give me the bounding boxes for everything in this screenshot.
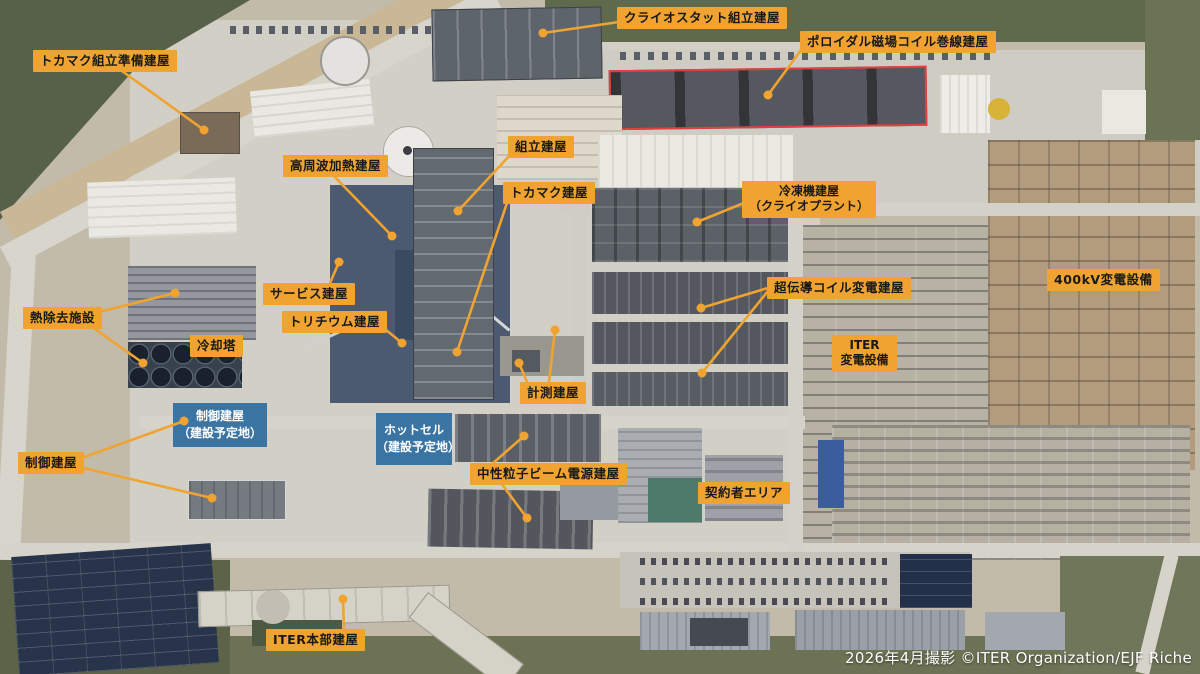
round-tank	[320, 36, 370, 86]
large-white-tent-left	[87, 177, 237, 238]
label-rf-heating: 高周波加熱建屋	[283, 155, 388, 177]
label-cooling-tower: 冷却塔	[190, 335, 243, 357]
blue-long-building	[818, 440, 844, 508]
overlay-hot-cell-line2: （建設予定地）	[376, 439, 452, 456]
round-dome-center	[403, 146, 412, 155]
contractor-teal-building	[648, 478, 702, 522]
magnet-power-block-3	[592, 372, 788, 406]
label-cryoplant-line2: （クライオプラント）	[749, 199, 869, 214]
switchyard-lower-right	[832, 425, 1190, 560]
white-tent-right-1	[940, 75, 990, 133]
photo-caption: 2026年4月撮影 ©ITER Organization/EJF Riche	[845, 647, 1192, 668]
label-contractor-area: 契約者エリア	[698, 482, 790, 504]
label-tokamak-building: トカマク建屋	[503, 182, 595, 204]
overlay-control-line2: （建設予定地）	[173, 425, 267, 442]
label-service-building: サービス建屋	[263, 283, 355, 305]
overlay-control-building-planned: 制御建屋 （建設予定地）	[173, 403, 267, 447]
hq-round-feature	[256, 590, 290, 624]
parked-cars-row-3	[640, 598, 890, 605]
solar-panels-bottom-left	[11, 543, 219, 674]
warehouse-bottom-2	[795, 610, 965, 650]
overlay-control-line1: 制御建屋	[173, 408, 267, 425]
label-iter-substation-line1: ITER	[839, 338, 890, 353]
white-long-tent-mid	[598, 135, 793, 187]
parked-cars-row-2	[640, 578, 890, 585]
yellow-coil	[988, 98, 1010, 120]
label-cryoplant: 冷凍機建屋 （クライオプラント）	[742, 181, 876, 218]
label-iter-substation: ITER 変電設備	[832, 335, 897, 372]
magnet-power-block-1	[592, 272, 788, 314]
label-iter-substation-line2: 変電設備	[839, 353, 890, 368]
label-heat-rejection: 熱除去施設	[23, 307, 102, 329]
cryostat-assembly-building	[431, 7, 602, 82]
aerial-photo-stage: 制御建屋 （建設予定地） ホットセル （建設予定地）	[0, 0, 1200, 674]
forest-right-edge	[1145, 0, 1200, 140]
warehouse-bottom-3	[985, 612, 1065, 650]
label-cryostat-assembly: クライオスタット組立建屋	[617, 7, 787, 29]
pf-coil-winding-building	[609, 66, 928, 130]
label-control-building: 制御建屋	[18, 452, 84, 474]
label-substation-400kv: 400kV変電設備	[1047, 269, 1160, 291]
switchyard-400kv	[988, 140, 1195, 470]
label-diagnostics-building: 計測建屋	[520, 382, 586, 404]
heat-rejection-equipment	[128, 266, 256, 340]
assembly-hall-building	[413, 148, 494, 400]
neutral-beam-building-1	[455, 414, 601, 462]
solar-canopy-right	[900, 554, 972, 608]
parked-cars-row-1	[640, 558, 890, 565]
label-pf-coil-winding: ポロイダル磁場コイル巻線建屋	[800, 31, 996, 53]
label-cryoplant-line1: 冷凍機建屋	[749, 184, 869, 199]
road-vertical-switchyard	[788, 210, 803, 560]
label-tritium-building: トリチウム建屋	[282, 311, 387, 333]
label-assembly-hall: 組立建屋	[508, 136, 574, 158]
dark-roof-small	[690, 618, 748, 646]
parked-cars-upper-right	[620, 52, 990, 60]
overlay-hot-cell-planned: ホットセル （建設予定地）	[376, 413, 452, 465]
white-tent-right-2	[1102, 90, 1146, 134]
label-iter-headquarters: ITER本部建屋	[266, 629, 365, 651]
label-neutral-beam-power: 中性粒子ビーム電源建屋	[470, 463, 627, 485]
control-building-construction	[188, 480, 286, 520]
magnet-power-block-2	[592, 322, 788, 364]
diagnostics-small-building	[512, 350, 540, 372]
label-tokamak-assembly-prep: トカマク組立準備建屋	[33, 50, 177, 72]
overlay-hot-cell-line1: ホットセル	[376, 422, 452, 439]
label-sc-coil-substation: 超伝導コイル変電建屋	[767, 277, 911, 299]
tokamak-prep-building	[180, 112, 240, 154]
